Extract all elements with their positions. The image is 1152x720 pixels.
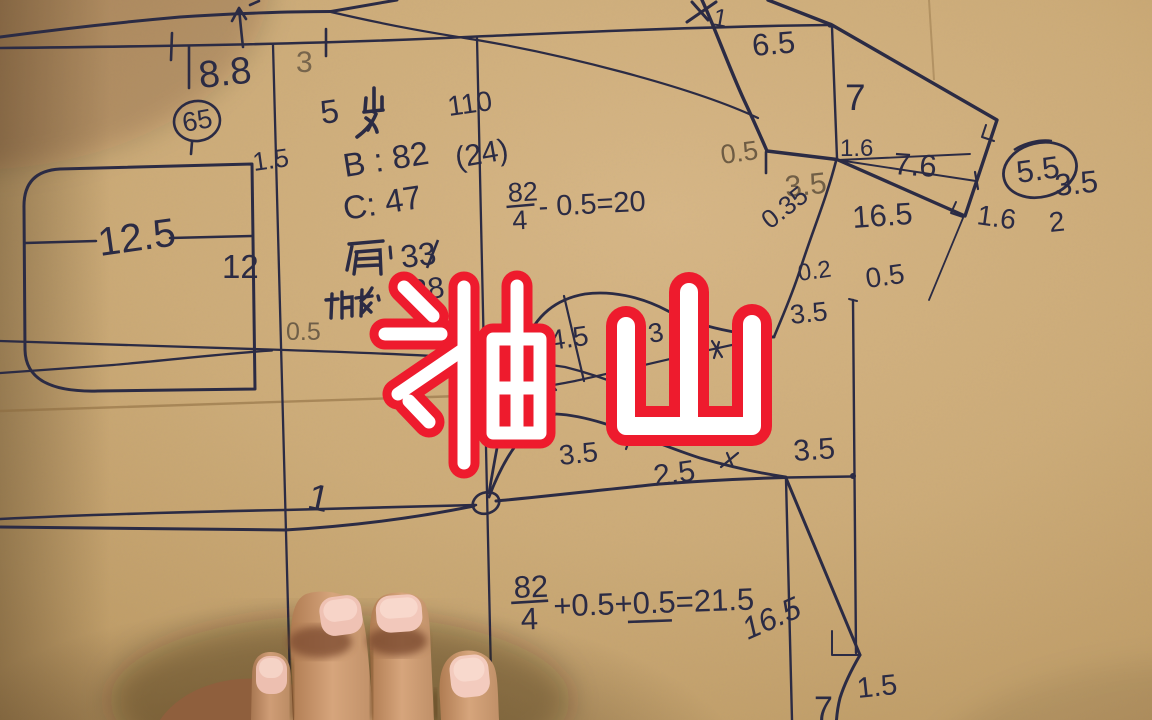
svg-text:- 0.5=20: - 0.5=20 <box>538 186 647 224</box>
svg-text:1.5: 1.5 <box>251 142 291 177</box>
svg-text:1.6: 1.6 <box>840 135 873 162</box>
svg-text:+0.5+0.5=21.5: +0.5+0.5=21.5 <box>553 582 755 624</box>
svg-text:65: 65 <box>180 103 215 138</box>
svg-text:1.6: 1.6 <box>975 199 1018 235</box>
svg-text:0.5: 0.5 <box>864 258 907 294</box>
svg-text:6.5: 6.5 <box>751 24 797 63</box>
svg-text:7.6: 7.6 <box>893 146 938 184</box>
svg-text:3: 3 <box>296 46 313 79</box>
svg-text:12: 12 <box>222 248 259 285</box>
svg-text:0.2: 0.2 <box>796 256 833 287</box>
svg-text:3.5: 3.5 <box>1053 164 1100 203</box>
svg-text:0.5: 0.5 <box>286 318 321 346</box>
svg-text:3.5: 3.5 <box>792 432 836 468</box>
svg-text:3.5: 3.5 <box>557 436 599 471</box>
svg-text:82: 82 <box>513 569 549 605</box>
svg-text:0.5: 0.5 <box>719 135 760 170</box>
svg-text:7: 7 <box>845 77 866 118</box>
svg-text:2.5: 2.5 <box>651 454 697 492</box>
svg-text:110: 110 <box>446 85 495 122</box>
svg-text:2: 2 <box>1047 206 1066 238</box>
svg-text:4: 4 <box>520 601 538 637</box>
svg-text:8.8: 8.8 <box>197 50 254 97</box>
svg-text:82: 82 <box>507 176 539 208</box>
svg-text:3.5: 3.5 <box>788 296 828 330</box>
svg-text:4: 4 <box>511 205 528 236</box>
svg-text:1.5: 1.5 <box>855 669 898 705</box>
svg-text:16.5: 16.5 <box>851 196 914 235</box>
svg-text:7: 7 <box>814 690 833 720</box>
